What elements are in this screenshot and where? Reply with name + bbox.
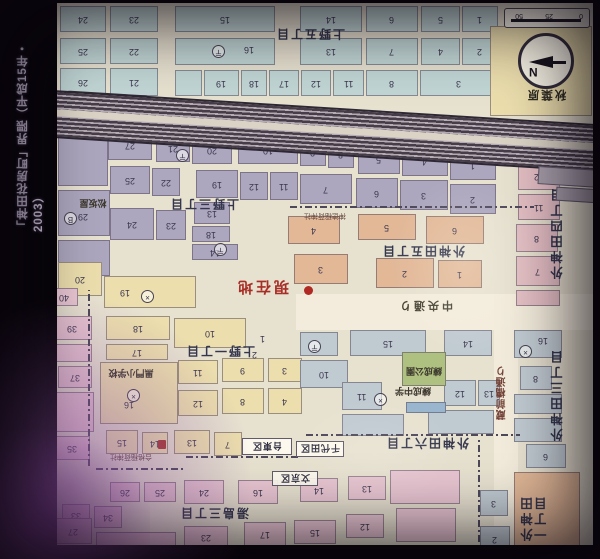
city-block-11: 11 xyxy=(270,172,298,200)
police-icon: × xyxy=(141,290,154,303)
post-icon: 〒 xyxy=(176,149,189,162)
city-block-25: 25 xyxy=(60,38,106,64)
city-block xyxy=(406,402,446,413)
city-block-25: 25 xyxy=(144,482,176,502)
city-block xyxy=(516,290,560,306)
city-block-1: 1 xyxy=(438,260,482,288)
city-block-6: 6 xyxy=(366,6,418,32)
compass-north-label: N xyxy=(529,65,538,79)
city-block-25: 25 xyxy=(110,166,150,194)
poi-label: 練成中学 xyxy=(390,386,436,398)
city-block-3: 3 xyxy=(480,490,508,516)
bank-icon: B xyxy=(64,212,77,225)
city-block xyxy=(342,414,404,436)
city-block-18: 18 xyxy=(241,70,267,96)
city-block-13: 13 xyxy=(174,430,210,454)
district-label: 外神田一丁目 xyxy=(522,488,568,545)
city-block xyxy=(57,344,92,362)
city-block-18: 18 xyxy=(192,226,230,242)
city-block-37: 37 xyxy=(58,366,92,388)
compass-needle-tail xyxy=(553,61,566,64)
city-block-15: 15 xyxy=(294,520,336,544)
street-label: 中央通り xyxy=(390,298,460,315)
city-block-4: 4 xyxy=(421,38,460,65)
city-block-26: 26 xyxy=(110,482,140,502)
ward-label: 台東区 xyxy=(242,438,292,455)
scale-bar: 0 25 50 xyxy=(504,8,590,28)
shrine-label: 合格稲荷神社 xyxy=(92,451,170,463)
scale-tick: 50 xyxy=(515,12,523,19)
city-block-40: 40 xyxy=(57,288,78,306)
city-block-12: 12 xyxy=(346,514,384,538)
city-block-18: 18 xyxy=(106,316,170,340)
city-block-12: 12 xyxy=(301,70,331,96)
ward-label: 文京区 xyxy=(272,471,318,486)
city-block-23: 23 xyxy=(156,210,186,240)
city-block xyxy=(175,38,275,65)
city-block-6: 6 xyxy=(426,216,484,244)
poi-label: 黒門小学校 xyxy=(102,367,160,380)
city-block-35: 35 xyxy=(57,436,90,460)
block-number: 19 xyxy=(120,288,130,297)
map-inner: 2423151465125221374226211918171211832721… xyxy=(57,3,593,545)
city-block-9: 9 xyxy=(222,358,264,382)
city-block-7: 7 xyxy=(214,432,242,456)
block-number: 29 xyxy=(78,212,88,221)
city-block-10: 10 xyxy=(300,360,348,388)
compass-rose: N xyxy=(518,33,574,89)
map-objects-layer: 2423151465125221374226211918171211832721… xyxy=(57,3,593,545)
city-block-17: 17 xyxy=(269,70,299,96)
city-block-24: 24 xyxy=(110,208,154,240)
police-icon: × xyxy=(519,345,532,358)
city-block-12: 12 xyxy=(178,390,218,416)
map-paper: 2423151465125221374226211918171211832721… xyxy=(57,3,593,545)
city-block xyxy=(175,70,202,96)
city-block-7: 7 xyxy=(300,174,352,204)
city-block-2: 2 xyxy=(480,526,510,545)
city-block xyxy=(396,508,456,542)
ward-label: 千代田区 xyxy=(296,441,344,457)
city-block-19: 19 xyxy=(196,170,238,198)
city-block-17: 17 xyxy=(106,344,168,360)
city-block-19: 19 xyxy=(204,70,239,96)
block-number: 16 xyxy=(244,45,254,54)
block-number: 1 xyxy=(260,334,265,343)
block-number: 7 xyxy=(556,416,561,425)
city-block-39: 39 xyxy=(57,316,92,340)
city-block-3: 3 xyxy=(420,70,498,96)
map-title: 「神田花房町」界隈（平成15年・2003） xyxy=(15,14,47,232)
city-block-14: 14 xyxy=(444,330,492,356)
ward-boundary-line xyxy=(88,290,90,466)
scale-tick: 0 xyxy=(579,12,583,19)
current-location-label: 現在地 xyxy=(229,277,295,298)
district-label: 上野三丁目 xyxy=(160,197,248,213)
district-label: 上野一丁目 xyxy=(180,344,260,359)
district-label: 外神田五丁目 xyxy=(362,243,484,260)
city-block-12: 12 xyxy=(240,172,268,200)
district-label: 外神田三丁目 xyxy=(552,340,576,450)
poi-label: 松坂屋 xyxy=(72,197,114,211)
city-block xyxy=(428,410,494,434)
street-label: 蔵前橋通り xyxy=(495,352,515,434)
city-block-8: 8 xyxy=(222,388,264,414)
scale-bar-line xyxy=(511,19,581,22)
city-block-23: 23 xyxy=(110,6,158,32)
district-label: 上野五丁目 xyxy=(266,27,354,42)
city-block-22: 22 xyxy=(110,38,158,64)
city-block-11: 11 xyxy=(333,70,364,96)
city-block-27: 27 xyxy=(57,518,92,544)
block-number: 16 xyxy=(538,336,548,345)
city-block-2: 2 xyxy=(450,184,496,214)
city-block-17: 17 xyxy=(244,522,286,545)
city-block-24: 24 xyxy=(184,480,224,504)
city-block-2: 2 xyxy=(376,258,434,288)
city-block-34: 34 xyxy=(94,506,122,528)
scale-tick: 25 xyxy=(545,12,553,19)
city-block-11: 11 xyxy=(178,360,218,384)
city-block-8: 8 xyxy=(366,70,418,96)
city-block-3: 3 xyxy=(268,358,302,382)
city-block-8: 8 xyxy=(520,366,552,390)
city-block-15: 15 xyxy=(175,6,275,32)
map-sign-photo: 「神田花房町」界隈（平成15年・2003） 242315146512522137… xyxy=(0,0,600,559)
ward-boundary-line xyxy=(290,206,534,208)
poi-label: 練成公園 xyxy=(404,366,444,378)
ward-boundary-line xyxy=(96,468,184,470)
city-block-12: 12 xyxy=(444,380,476,406)
shrine-label: 神徳稲荷神社 xyxy=(296,211,354,222)
city-block-24: 24 xyxy=(60,6,106,32)
post-icon: 〒 xyxy=(308,340,321,353)
city-block-5: 5 xyxy=(358,214,416,240)
block-number: 2 xyxy=(252,350,257,359)
city-block-22: 22 xyxy=(152,168,180,196)
post-icon: 〒 xyxy=(214,243,227,256)
city-block-6: 6 xyxy=(356,178,398,208)
shrine-icon xyxy=(158,440,166,449)
city-block xyxy=(390,470,460,504)
city-block xyxy=(96,532,176,545)
city-block-23: 23 xyxy=(184,526,228,545)
city-block-21: 21 xyxy=(110,68,158,96)
block-number: 16 xyxy=(124,400,134,409)
ward-boundary-line xyxy=(186,456,300,458)
city-block-4: 4 xyxy=(268,388,302,414)
district-label: 湯島三丁目 xyxy=(184,506,244,521)
district-label: 外神田六丁目 xyxy=(390,437,464,451)
city-block-13: 13 xyxy=(348,476,386,500)
ward-boundary-line xyxy=(478,438,480,542)
city-block-5: 5 xyxy=(421,6,460,32)
post-icon: 〒 xyxy=(212,45,225,58)
reddot-icon xyxy=(304,286,313,295)
city-block-3: 3 xyxy=(294,254,348,284)
station-platform xyxy=(556,187,593,204)
police-icon: × xyxy=(374,393,387,406)
city-block-7: 7 xyxy=(366,38,418,65)
